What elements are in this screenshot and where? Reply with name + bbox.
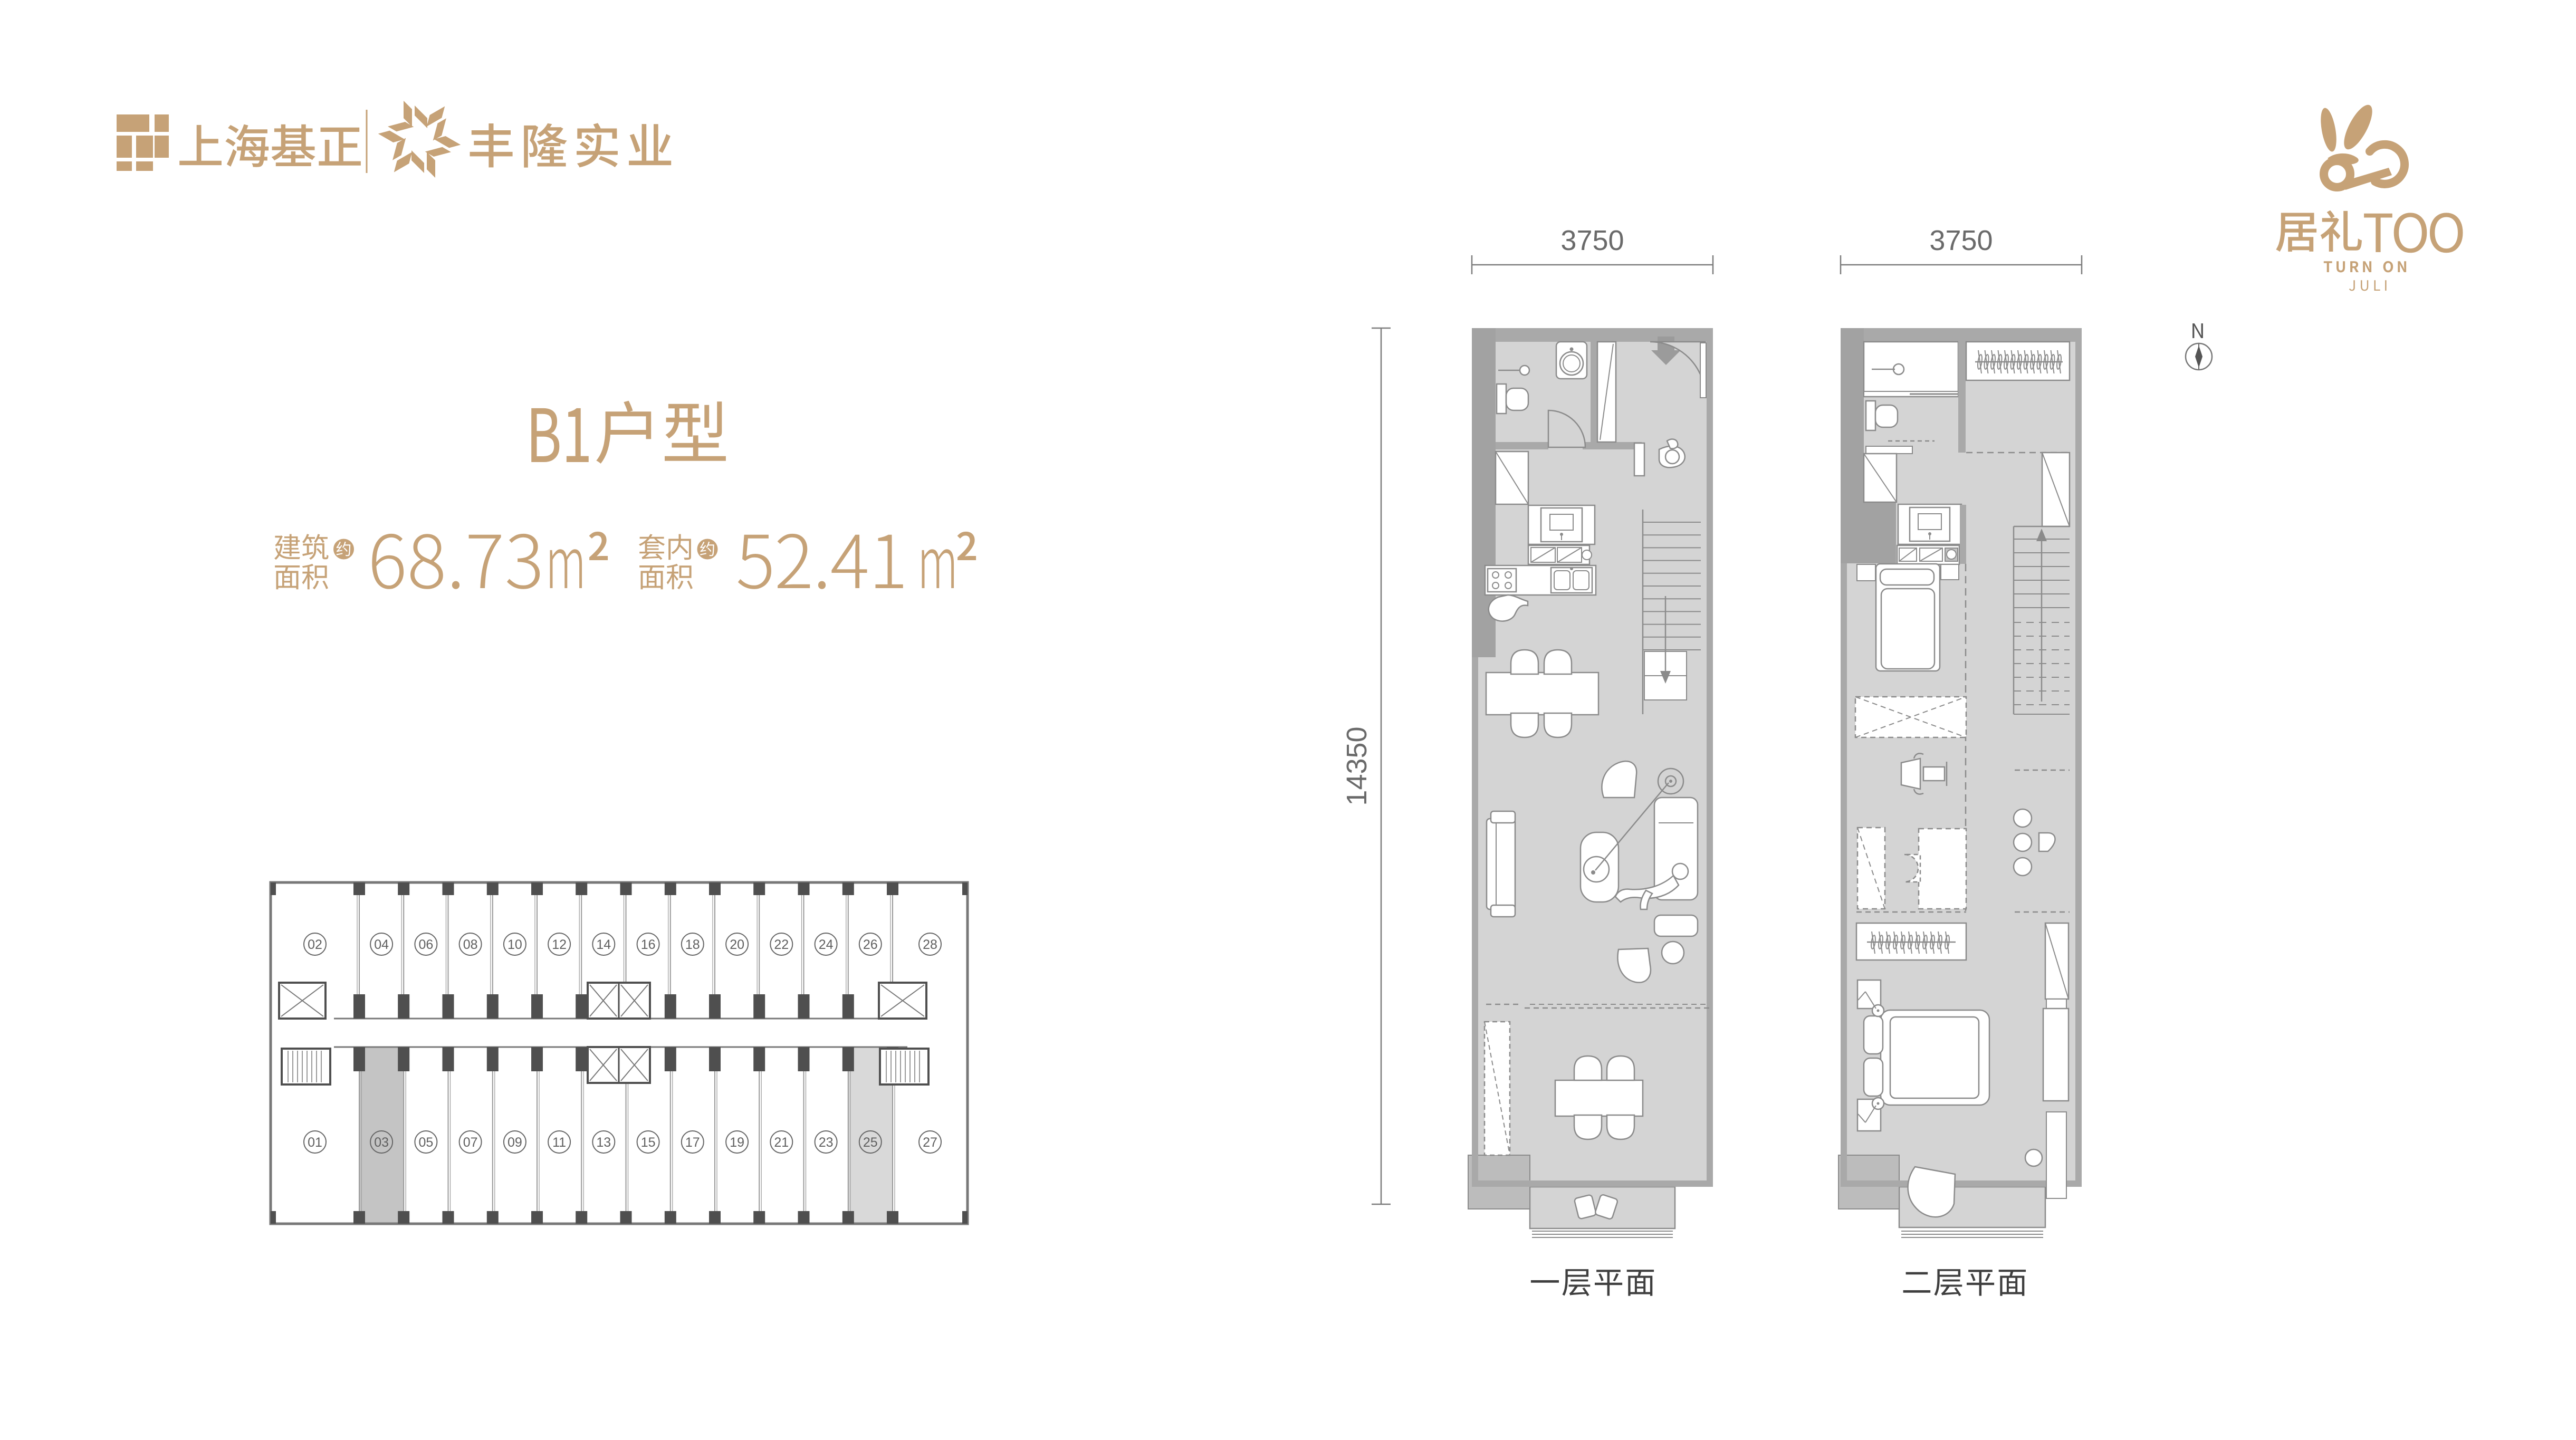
svg-text:27: 27 [923,1135,937,1150]
svg-text:3750: 3750 [1560,225,1624,256]
svg-text:22: 22 [774,937,789,952]
svg-text:28: 28 [923,937,937,952]
svg-text:23: 23 [819,1135,834,1150]
svg-text:03: 03 [374,1135,389,1150]
svg-text:04: 04 [374,937,389,952]
svg-text:05: 05 [418,1135,433,1150]
svg-text:26: 26 [863,937,878,952]
svg-text:21: 21 [774,1135,789,1150]
svg-text:24: 24 [819,937,834,952]
svg-text:06: 06 [418,937,433,952]
svg-text:14350: 14350 [1341,726,1373,805]
svg-text:16: 16 [641,937,656,952]
svg-text:20: 20 [730,937,744,952]
svg-text:08: 08 [463,937,478,952]
svg-text:09: 09 [507,1135,522,1150]
svg-text:15: 15 [641,1135,656,1150]
svg-text:02: 02 [308,937,322,952]
svg-text:12: 12 [552,937,567,952]
svg-text:01: 01 [308,1135,322,1150]
svg-text:14: 14 [596,937,611,952]
svg-text:17: 17 [685,1135,700,1150]
svg-text:13: 13 [596,1135,611,1150]
svg-text:25: 25 [863,1135,878,1150]
svg-text:19: 19 [730,1135,744,1150]
svg-text:18: 18 [685,937,700,952]
svg-text:11: 11 [552,1135,566,1150]
svg-text:3750: 3750 [1929,225,1993,256]
svg-text:07: 07 [463,1135,478,1150]
svg-text:10: 10 [507,937,522,952]
